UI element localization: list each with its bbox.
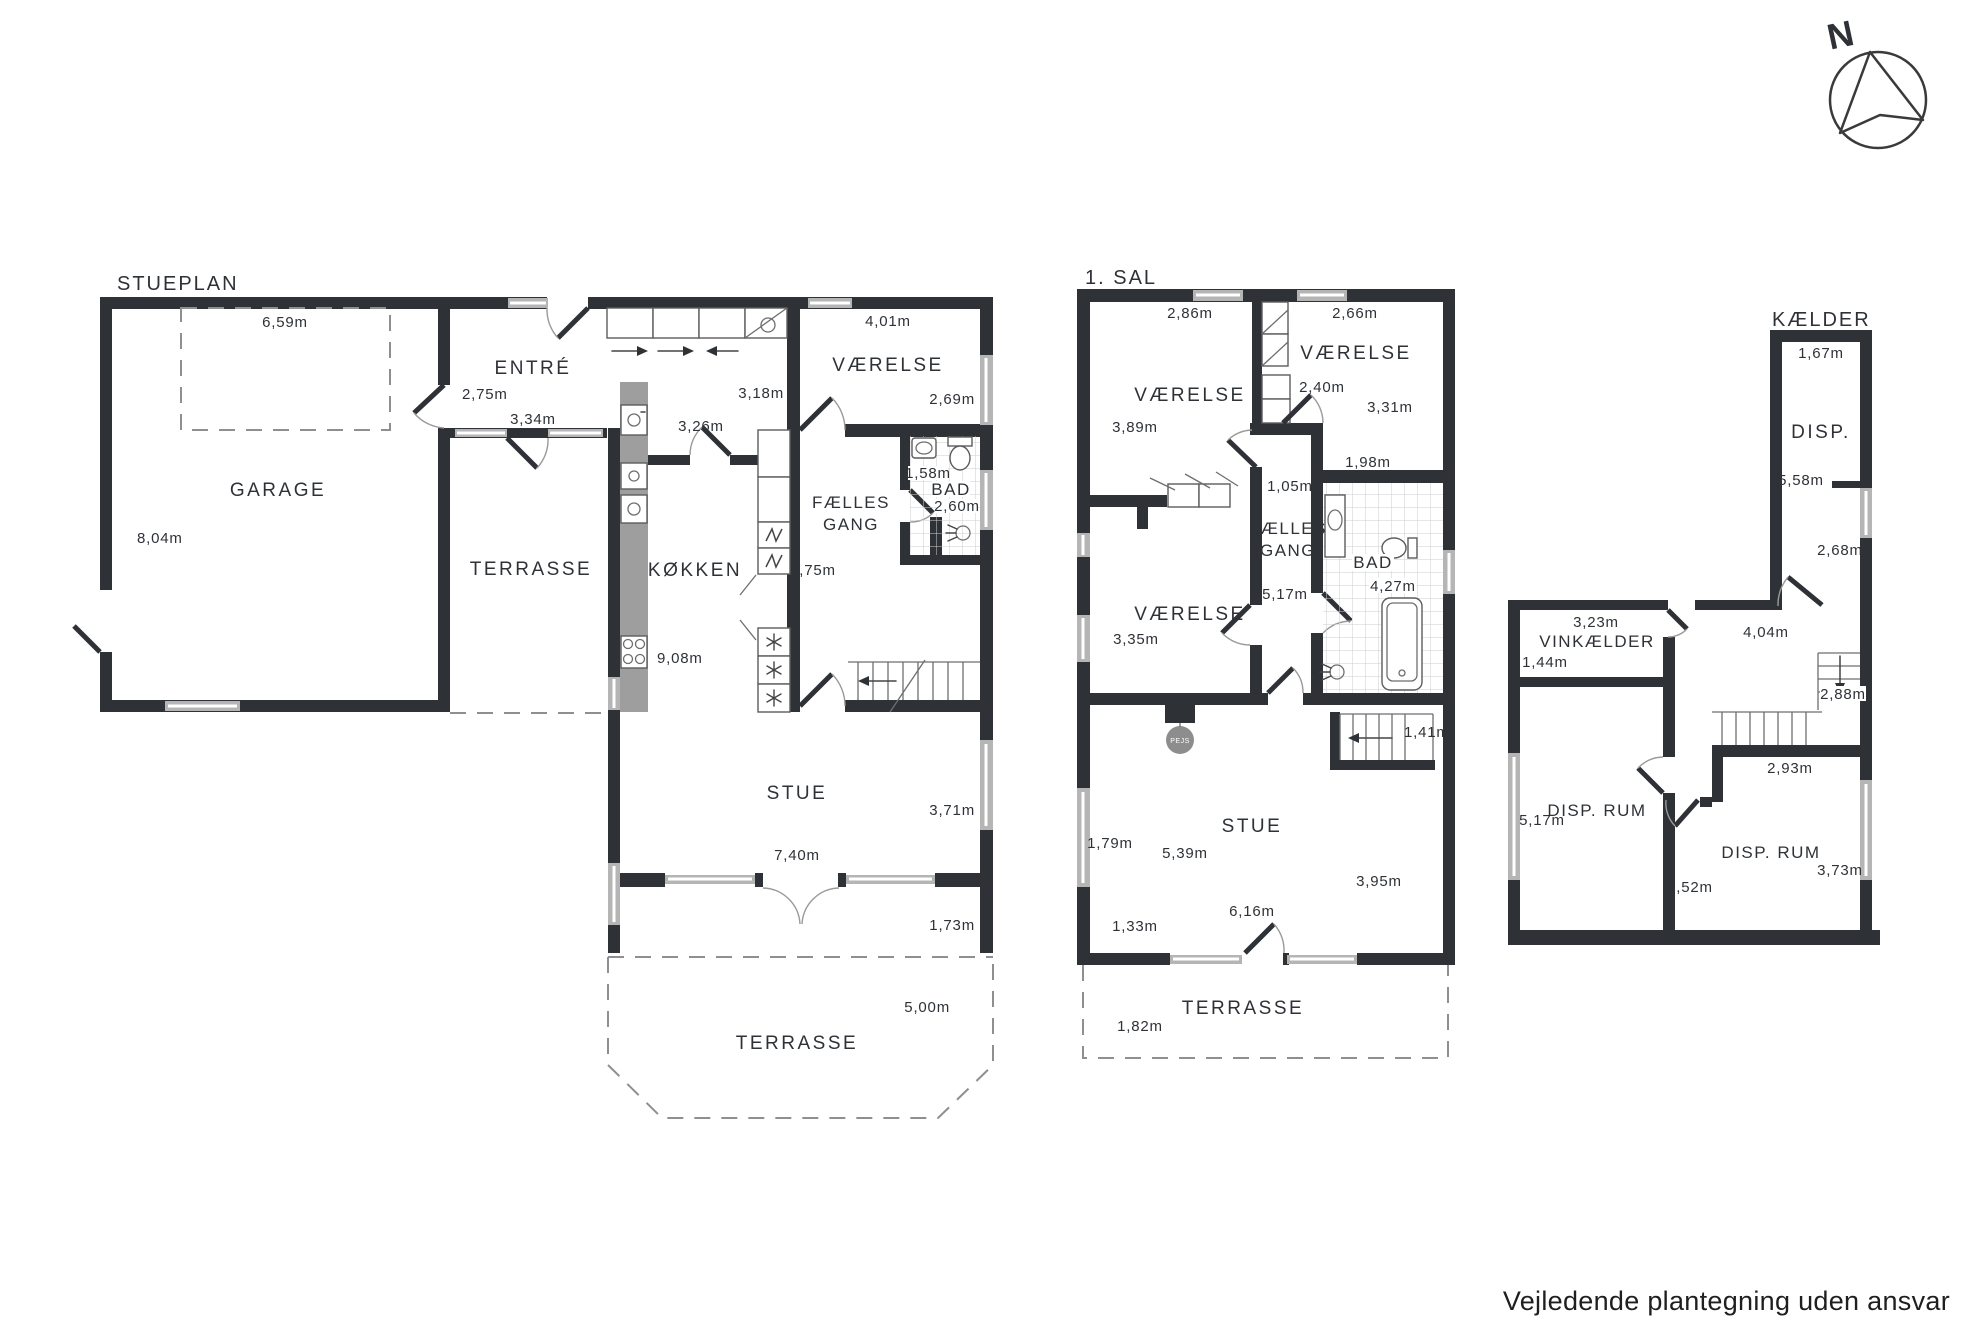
disp-width: 1,67m — [1798, 345, 1844, 362]
disp-label: DISP. — [1791, 422, 1851, 443]
stue-width: 7,40m — [774, 847, 820, 864]
terrasse-label: TERRASSE — [1182, 998, 1304, 1019]
vaerelse-no-width: 2,66m — [1332, 305, 1378, 322]
stue-side-dim: 1,33m — [1112, 918, 1158, 935]
bad-top-dim: 1,98m — [1345, 454, 1391, 471]
stue-width: 5,39m — [1162, 845, 1208, 862]
kokken-length: 9,08m — [657, 650, 703, 667]
plan-stueplan: STUEPLAN — [74, 273, 993, 1118]
vaerelse-nv-depth: 3,89m — [1112, 419, 1158, 436]
stue-porch: 1,73m — [929, 917, 975, 934]
stue-door-dim: 6,16m — [1229, 903, 1275, 920]
disp-rum-ost-label: DISP. RUM — [1721, 843, 1820, 862]
entre-depth: 3,18m — [738, 385, 784, 402]
floor-plan-drawing: N STUEPLAN — [0, 0, 1984, 1323]
terrasse-vest-label: TERRASSE — [470, 559, 592, 580]
vaerelse-no-label: VÆRELSE — [1300, 343, 1411, 364]
sink-icon — [1325, 495, 1345, 557]
entre-width: 3,34m — [510, 411, 556, 428]
vaerelse-sv-label: VÆRELSE — [1134, 604, 1245, 625]
vaerelse-sv-width: 3,35m — [1113, 631, 1159, 648]
disp-length: 5,58m — [1778, 472, 1824, 489]
terrasse-syd-label: TERRASSE — [736, 1033, 858, 1054]
window-icon — [165, 298, 993, 925]
chimney — [1165, 693, 1195, 723]
gang-label-1: FÆLLES — [1249, 519, 1327, 538]
terrasse-depth: 1,82m — [1117, 1018, 1163, 1035]
bad-depth: 2,60m — [934, 498, 980, 515]
sal-title: 1. SAL — [1085, 267, 1157, 289]
appliance-column — [740, 430, 790, 712]
stair-width: 1,41m — [1404, 724, 1450, 741]
toilet-icon — [1408, 538, 1417, 558]
disp-door-dim: 2,68m — [1817, 542, 1863, 559]
stue-label: STUE — [767, 783, 828, 804]
entre-label: ENTRÉ — [495, 358, 572, 379]
stue-depth: 3,95m — [1356, 873, 1402, 890]
hall-stair-dim: 2,88m — [1820, 686, 1866, 703]
disp-rum-ost-depth: 3,73m — [1817, 862, 1863, 879]
wardrobe-icon — [607, 308, 787, 356]
hall-width: 4,04m — [1743, 624, 1789, 641]
pejs-label: PEJS — [1170, 738, 1190, 745]
kitchen-counter — [620, 382, 648, 712]
stueplan-title: STUEPLAN — [117, 273, 239, 295]
compass-north-label: N — [1823, 12, 1857, 58]
garage-width: 6,59m — [262, 314, 308, 331]
entre-door-dim: 2,75m — [462, 386, 508, 403]
vaerelse-depth: 2,69m — [929, 391, 975, 408]
vaerelse-nv-label: VÆRELSE — [1134, 385, 1245, 406]
toilet-icon — [948, 437, 972, 446]
disp-rum-ost-door: 2,52m — [1667, 879, 1713, 896]
stue-depth: 3,71m — [929, 802, 975, 819]
gang-width: 1,05m — [1267, 478, 1313, 495]
gang-label-2: GANG — [1260, 541, 1316, 560]
stue-window-dim: 1,79m — [1087, 835, 1133, 852]
fireplace-icon: PEJS — [1166, 723, 1194, 754]
terrasse-syd-depth: 5,00m — [904, 999, 950, 1016]
vaerelse-no-depth: 3,31m — [1367, 399, 1413, 416]
kokken-width: 3,26m — [678, 418, 724, 435]
garage-label: GARAGE — [230, 480, 326, 501]
kokken-label: KØKKEN — [648, 560, 742, 581]
vaerelse-width: 4,01m — [865, 313, 911, 330]
plan-1-sal: 1. SAL — [1077, 267, 1455, 1058]
gang-label-1: FÆLLES — [812, 493, 890, 512]
gang-label-2: GANG — [823, 515, 879, 534]
vinkaelder-label: VINKÆLDER — [1539, 632, 1655, 651]
kaelder-title: KÆLDER — [1772, 309, 1871, 331]
north-compass-icon: N — [1823, 12, 1926, 148]
floor-plan-page: N STUEPLAN — [0, 0, 1984, 1323]
vaerelse-no-closet: 2,40m — [1299, 379, 1345, 396]
vinkaelder-width: 3,23m — [1573, 614, 1619, 631]
disp-rum-ost-top: 2,93m — [1767, 760, 1813, 777]
bad-length: 4,27m — [1370, 578, 1416, 595]
disclaimer-text: Vejledende plantegning uden ansvar — [1503, 1286, 1950, 1316]
gang-length: 5,75m — [790, 562, 836, 579]
stue-label: STUE — [1222, 816, 1283, 837]
plan-kaelder: KÆLDER 1,67m DISP. 5,58m — [1508, 309, 1880, 945]
gang-length: 5,17m — [1262, 586, 1308, 603]
bad-label: BAD — [1353, 553, 1392, 572]
garage-depth: 8,04m — [137, 530, 183, 547]
disp-rum-vest-length: 5,17m — [1519, 812, 1565, 829]
vinkaelder-depth: 1,44m — [1522, 654, 1568, 671]
bad-label: BAD — [931, 480, 970, 499]
vaerelse-nv-width: 2,86m — [1167, 305, 1213, 322]
vaerelse-label: VÆRELSE — [832, 355, 943, 376]
